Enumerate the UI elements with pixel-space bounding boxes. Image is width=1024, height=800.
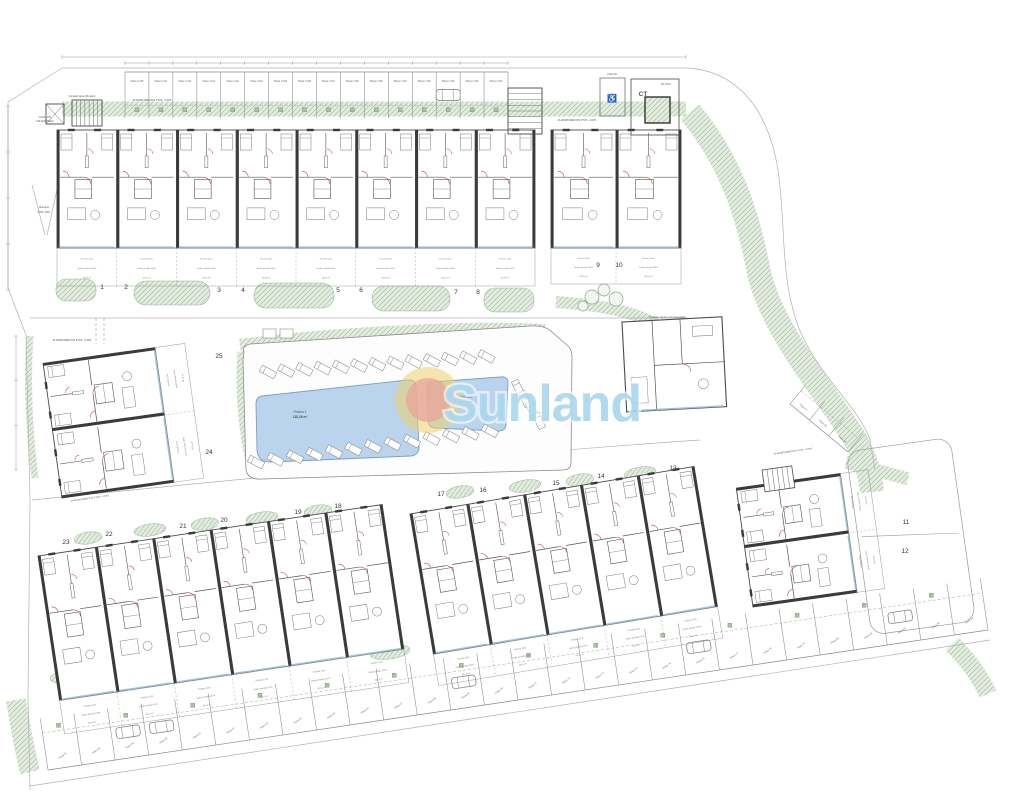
annotation: 138,26 m² bbox=[293, 415, 308, 419]
parking-space-label: Plaza 70 bbox=[495, 686, 505, 694]
annotation: Plaza 99 bbox=[607, 73, 617, 76]
unit-number: 17 bbox=[437, 491, 445, 498]
parking-space-label: Plaza 62 bbox=[226, 726, 236, 734]
unit-number: 7 bbox=[454, 289, 458, 296]
annotation: 26 APARTAMENTOS PTOS - COPS bbox=[53, 339, 92, 342]
annotation: Contador agua (26 apart) bbox=[69, 95, 96, 98]
garden-label: Parcela 123a bbox=[439, 257, 452, 260]
car bbox=[149, 720, 174, 734]
parking-space-label: Plaza 76 bbox=[696, 656, 706, 664]
annotation: PTE 16% bbox=[38, 210, 51, 214]
block-units-24-25: Parcela 123aJardín privado 100%58,16 m²P… bbox=[42, 343, 204, 498]
garden-label: 58,16 m² bbox=[579, 275, 588, 278]
parking-space-label: Plaza nº105 bbox=[370, 79, 384, 83]
parking-space-label: Plaza 68 bbox=[427, 696, 437, 704]
garden-label: Parcela 123a bbox=[577, 257, 590, 260]
garden-label: Jardín privado 100% bbox=[376, 267, 395, 270]
garden-label: Parcela 123a bbox=[141, 257, 154, 260]
car bbox=[686, 640, 711, 654]
annotation: 22,75m² bbox=[661, 82, 671, 86]
garden-label: Parcela 123a bbox=[499, 257, 512, 260]
planter bbox=[422, 108, 426, 112]
garden-label: Parcela 123a bbox=[141, 695, 154, 700]
hedge bbox=[254, 283, 334, 308]
planter bbox=[795, 613, 799, 617]
car bbox=[888, 610, 913, 624]
parking-space-label: Plaza 74 bbox=[629, 666, 639, 674]
parking-space-label: Plaza 67 bbox=[394, 701, 404, 709]
garden-label: Parcela 123a bbox=[256, 677, 269, 682]
planter bbox=[57, 723, 61, 727]
planter bbox=[929, 593, 933, 597]
unit-number: 5 bbox=[336, 287, 340, 294]
garden-label: 58,16 m² bbox=[501, 276, 510, 279]
boundary-line bbox=[8, 102, 30, 790]
garden-label: 58,16 m² bbox=[145, 712, 154, 716]
planter bbox=[159, 108, 163, 112]
planter bbox=[326, 108, 330, 112]
parking-space-label: Plaza 57 bbox=[58, 751, 68, 759]
garden-label: Parcela 123a bbox=[166, 373, 171, 386]
green-band bbox=[846, 462, 908, 479]
planter bbox=[124, 713, 128, 717]
garden-label: 58,16 m² bbox=[689, 634, 698, 638]
garden-label: Jardín privado 100% bbox=[311, 677, 330, 683]
block-units-1-8: Parcela 123aJardín privado 100%58,16 m²P… bbox=[57, 129, 535, 286]
bush bbox=[73, 530, 102, 546]
garden-label: Jardín privado 100% bbox=[257, 267, 276, 270]
planter bbox=[728, 623, 732, 627]
garden-label: 58,16 m² bbox=[322, 276, 331, 279]
unit-number: 4 bbox=[241, 287, 245, 294]
green-band bbox=[952, 644, 988, 694]
unit-number: 19 bbox=[294, 509, 302, 516]
garden-label: Parcela 123a bbox=[850, 495, 855, 508]
garden-label: Jardín privado 100% bbox=[682, 625, 701, 631]
parking-space-label: Plaza 59 bbox=[125, 741, 135, 749]
planter bbox=[470, 108, 474, 112]
garden-label: Jardín privado 100% bbox=[316, 267, 335, 270]
unit-number: 25 bbox=[215, 353, 223, 360]
unit-number: 8 bbox=[476, 289, 480, 296]
garden-label: Jardín privado 100% bbox=[368, 668, 387, 674]
garden-label: 58,16 m² bbox=[262, 276, 271, 279]
garden-label: Parcela 123a bbox=[457, 656, 470, 661]
hedge bbox=[372, 286, 450, 311]
annotation: Contador agua y luz comunidad bbox=[649, 315, 686, 319]
site-plan-canvas: Plaza nº115Plaza nº114Plaza nº113Plaza n… bbox=[0, 0, 1024, 800]
unit-number: 16 bbox=[479, 487, 487, 494]
car bbox=[115, 725, 140, 739]
parking-space-label: Plaza nº111 bbox=[226, 79, 239, 83]
planter bbox=[494, 108, 498, 112]
parking-space-label: Plaza 80 bbox=[830, 636, 840, 644]
parking-space-label: Plaza 81 bbox=[864, 631, 874, 639]
parking-space-label: Plaza nº107 bbox=[322, 79, 336, 83]
garden-label: Parcela 123a bbox=[858, 554, 863, 567]
garden-label: Jardín privado 100% bbox=[137, 267, 156, 270]
garden-label: Jardín privado 100% bbox=[512, 654, 531, 660]
planter bbox=[594, 643, 598, 647]
planter bbox=[350, 108, 354, 112]
planter bbox=[135, 108, 139, 112]
parking-space-label: Plaza nº104 bbox=[394, 79, 408, 83]
planter bbox=[279, 108, 283, 112]
garden-label: 58,16 m² bbox=[317, 686, 326, 690]
car bbox=[436, 90, 460, 101]
bush bbox=[133, 522, 166, 538]
garden-label: Parcela 123a bbox=[684, 618, 697, 623]
block-units-9-10: Parcela 123aJardín privado 100%58,16 m²P… bbox=[551, 129, 681, 284]
unit-number: 14 bbox=[597, 473, 605, 480]
parking-space-label: Plaza nº106 bbox=[346, 79, 360, 83]
parking-space-label: Plaza nº112 bbox=[202, 79, 215, 83]
annotation: Rampa bbox=[39, 205, 49, 209]
planter bbox=[191, 703, 195, 707]
planter bbox=[325, 683, 329, 687]
garden-label: 58,16 m² bbox=[632, 643, 641, 647]
unit-number: 10 bbox=[615, 262, 623, 269]
garden-label: Parcela 123a bbox=[370, 660, 383, 665]
planter bbox=[255, 108, 259, 112]
parking-space-label: Plaza 79 bbox=[797, 641, 807, 649]
garden-label: Jardín privado 100% bbox=[173, 369, 179, 388]
boundary-line bbox=[8, 68, 62, 102]
garden-label: Jardín privado 100% bbox=[182, 437, 188, 456]
parking-space-label: Plaza 75 bbox=[662, 661, 672, 669]
garden-label: Parcela 123a bbox=[260, 257, 273, 260]
garden-label: Jardín privado 100% bbox=[865, 551, 871, 570]
parking-space-label: Plaza 64 bbox=[293, 716, 303, 724]
unit-number: 15 bbox=[552, 480, 560, 487]
parking-space-label: Plaza 66 bbox=[360, 706, 370, 714]
unit-number: 24 bbox=[205, 449, 213, 456]
hedge bbox=[134, 281, 210, 305]
tree bbox=[598, 284, 610, 296]
garden-label: Parcela 123a bbox=[200, 257, 213, 260]
parking-space-label: Plaza 61 bbox=[192, 731, 202, 739]
parking-space-label: Plaza nº101 bbox=[466, 79, 480, 83]
parking-space-label: Plaza 73 bbox=[595, 671, 605, 679]
parking-space-label: Plaza 84 bbox=[965, 616, 975, 624]
planter bbox=[398, 108, 402, 112]
parking-space-label: Plaza nº109 bbox=[274, 79, 288, 83]
garden-label: Parcela 123a bbox=[380, 257, 393, 260]
parking-space-label: Plaza 72 bbox=[562, 676, 572, 684]
unit-number: 2 bbox=[124, 284, 128, 291]
planter bbox=[862, 603, 866, 607]
car bbox=[451, 675, 476, 689]
planter bbox=[207, 108, 211, 112]
garden-label: Parcela 123a bbox=[83, 703, 96, 708]
parking-space-label: Plaza nº102 bbox=[442, 79, 456, 83]
logo-text: Sunland bbox=[443, 375, 641, 433]
garden-label: 58,16 m² bbox=[202, 276, 211, 279]
unit-number: 1 bbox=[100, 284, 104, 291]
parking-space-label: Plaza 77 bbox=[730, 651, 740, 659]
tree bbox=[578, 301, 588, 311]
parking-space-label: Plaza nº114 bbox=[155, 79, 168, 83]
parking-space-label: Plaza 69 bbox=[461, 691, 471, 699]
hedge bbox=[484, 288, 534, 312]
green-band bbox=[690, 112, 872, 492]
annotation: 26 APARTAMENTOS PTOS - COPS bbox=[774, 447, 813, 455]
green-band bbox=[29, 336, 35, 478]
tree bbox=[609, 292, 623, 306]
annotation: Piscina 1 bbox=[294, 410, 307, 414]
garden-label: Parcela 123a bbox=[198, 686, 211, 691]
unit-number: 12 bbox=[901, 548, 909, 555]
parking-space-label: Plaza 97 bbox=[799, 403, 809, 412]
hedge bbox=[56, 279, 96, 301]
annotation: 26 APARTAMENTOS PTOS - COPS bbox=[558, 119, 597, 122]
parking-space-label: Plaza 65 bbox=[327, 711, 337, 719]
planter bbox=[374, 108, 378, 112]
parking-space-label: Plaza nº103 bbox=[418, 79, 432, 83]
garden-label: Parcela 123a bbox=[627, 627, 640, 632]
garden-label: 58,16 m² bbox=[519, 662, 528, 666]
garden-label: Jardín privado 100% bbox=[639, 266, 658, 269]
garden-label: 58,16 m² bbox=[181, 373, 185, 382]
garden-label: Jardín privado 100% bbox=[253, 685, 272, 691]
parking-space-label: Plaza nº110 bbox=[250, 79, 263, 83]
garden-label: Jardín privado 100% bbox=[496, 267, 515, 270]
garden-label: Parcela 123a bbox=[320, 257, 333, 260]
unit-number: 9 bbox=[596, 262, 600, 269]
garden-label: Jardín privado 100% bbox=[574, 266, 593, 269]
planter bbox=[446, 108, 450, 112]
garden-label: Parcela 123a bbox=[514, 646, 527, 651]
garden-label: 58,16 m² bbox=[83, 276, 92, 279]
site-plan-drawing: Plaza nº115Plaza nº114Plaza nº113Plaza n… bbox=[0, 0, 1024, 800]
green-band bbox=[16, 700, 30, 772]
garden-label: 58,16 m² bbox=[644, 275, 653, 278]
annotation: ♿ bbox=[607, 93, 617, 103]
planter bbox=[231, 108, 235, 112]
garden-label: Jardín privado 100% bbox=[856, 491, 862, 510]
equipment-box bbox=[280, 329, 293, 338]
unit-number: 20 bbox=[220, 517, 228, 524]
sunland-logo: SunlandSunland bbox=[395, 367, 641, 433]
garden-label: Jardín privado 100% bbox=[625, 635, 644, 641]
garden-label: 58,16 m² bbox=[872, 555, 876, 564]
planter bbox=[392, 673, 396, 677]
ct-transformer bbox=[645, 97, 670, 123]
unit-number: 23 bbox=[62, 539, 70, 546]
parking-space-label: Plaza nº113 bbox=[179, 79, 192, 83]
bush bbox=[445, 484, 475, 500]
unit-number: 13 bbox=[669, 465, 677, 472]
garden-label: Jardín privado 100% bbox=[77, 267, 96, 270]
garden-label: 58,16 m² bbox=[864, 496, 868, 505]
garden-label: Parcela 123a bbox=[571, 637, 584, 642]
parking-space-label: Plaza 71 bbox=[528, 681, 538, 689]
unit-number: 21 bbox=[179, 523, 187, 530]
garden-label: Jardín privado 100% bbox=[197, 267, 216, 270]
unit-number: 6 bbox=[359, 287, 363, 294]
garden-label: 58,16 m² bbox=[375, 678, 384, 682]
garden-label: 58,16 m² bbox=[382, 276, 391, 279]
parking-space-label: Plaza 63 bbox=[260, 721, 270, 729]
garden-label: Jardín privado 100% bbox=[139, 703, 158, 709]
equipment-box bbox=[263, 329, 276, 338]
garden-label: Parcela 123a bbox=[642, 257, 655, 260]
parking-space-label: Plaza 60 bbox=[159, 736, 169, 744]
garden-label: 58,16 m² bbox=[190, 441, 194, 450]
garden-label: Jardín privado 100% bbox=[196, 694, 215, 700]
garden-label: Parcela 123a bbox=[81, 257, 94, 260]
garden-label: 58,16 m² bbox=[441, 276, 450, 279]
planter bbox=[303, 108, 307, 112]
annotation: CT bbox=[639, 91, 648, 98]
garden-label: Jardín privado 100% bbox=[81, 711, 100, 717]
tree bbox=[585, 290, 599, 304]
unit-number: 11 bbox=[903, 519, 910, 526]
annotation: DE ESPERA bbox=[36, 119, 53, 123]
garden-label: Jardín privado 100% bbox=[455, 663, 474, 669]
parking-space-label: Plaza 78 bbox=[763, 646, 773, 654]
unit-number: 3 bbox=[217, 287, 221, 294]
garden-label: Parcela 123a bbox=[175, 440, 180, 453]
exterior-stairs bbox=[762, 466, 795, 492]
garden-label: Parcela 123a bbox=[313, 669, 326, 674]
unit-number: 18 bbox=[334, 503, 342, 510]
site-plan: Plaza nº115Plaza nº114Plaza nº113Plaza n… bbox=[0, 0, 1024, 800]
garden-label: 58,16 m² bbox=[143, 276, 152, 279]
parking-space-label: Plaza 58 bbox=[92, 746, 102, 754]
planter bbox=[183, 108, 187, 112]
parking-space-label: Plaza nº100 bbox=[490, 79, 504, 83]
garden-label: 58,16 m² bbox=[88, 720, 97, 724]
unit-number: 22 bbox=[105, 531, 113, 538]
parking-space-label: Plaza 96 bbox=[818, 419, 828, 428]
parking-space-label: Plaza nº115 bbox=[131, 79, 144, 83]
garden-label: Jardín privado 100% bbox=[436, 267, 455, 270]
parking-space-label: Plaza nº108 bbox=[298, 79, 312, 83]
annotation: 26 APARTAMENTOS PTOS - COPS bbox=[133, 99, 172, 102]
